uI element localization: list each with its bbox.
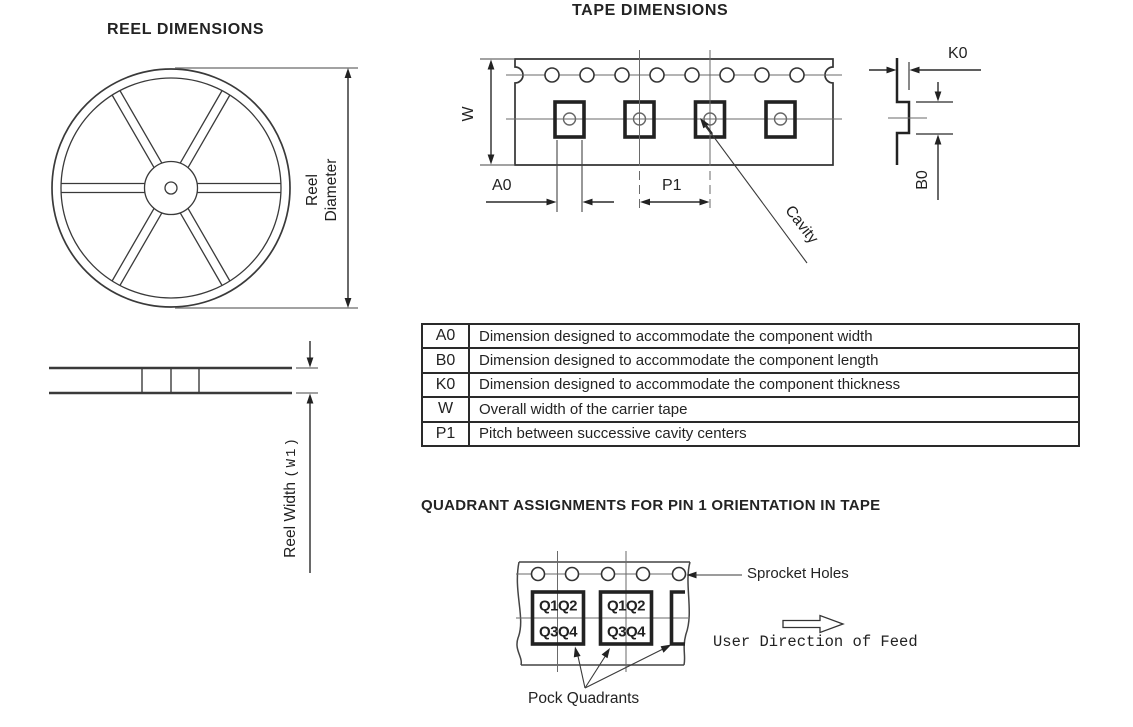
dim-description: Dimension designed to accommodate the co… <box>469 348 1079 372</box>
b0-label: B0 <box>914 170 932 190</box>
dim-description: Dimension designed to accommodate the co… <box>469 373 1079 397</box>
tape-w-label: W <box>460 106 478 121</box>
reel-center-hole <box>165 182 177 194</box>
tape-p1-dimension <box>640 199 710 206</box>
cavity2-quadrants-top: Q1Q2 <box>607 598 645 615</box>
dim-key: A0 <box>422 324 469 348</box>
table-row: P1 Pitch between successive cavity cente… <box>422 422 1079 446</box>
sprocket-holes-label: Sprocket Holes <box>747 565 849 582</box>
cavity2-quadrants-bottom: Q3Q4 <box>607 624 645 641</box>
reel-hub-circle <box>145 162 198 215</box>
table-row: A0 Dimension designed to accommodate the… <box>422 324 1079 348</box>
feed-direction-label: User Direction of Feed <box>713 633 918 651</box>
quadrant-assignments-title: QUADRANT ASSIGNMENTS FOR PIN 1 ORIENTATI… <box>421 497 880 514</box>
sprocket-holes-leader <box>687 572 743 579</box>
dim-key: W <box>422 397 469 421</box>
dim-key: K0 <box>422 373 469 397</box>
tape-drawing <box>480 50 842 263</box>
tape-a0-label: A0 <box>492 177 512 195</box>
dimension-definitions-table: A0 Dimension designed to accommodate the… <box>421 323 1080 447</box>
pocket-quadrant-leaders <box>574 645 672 689</box>
cavity1-quadrants-top: Q1Q2 <box>539 598 577 615</box>
cross-section-profile <box>897 58 909 165</box>
reel-diameter-label: Reel Diameter <box>303 159 341 222</box>
cavity-leader <box>700 118 807 263</box>
reel-dimensions-title: REEL DIMENSIONS <box>107 21 264 39</box>
dim-key: B0 <box>422 348 469 372</box>
reel-outer-circle <box>52 69 290 307</box>
k0-label: K0 <box>948 45 968 63</box>
reel-inner-rim-circle <box>61 78 281 298</box>
dim-description: Pitch between successive cavity centers <box>469 422 1079 446</box>
reel-width-label: Reel Width (W1) <box>282 436 300 558</box>
cavity1-quadrants-bottom: Q3Q4 <box>539 624 577 641</box>
table-row: W Overall width of the carrier tape <box>422 397 1079 421</box>
table-row: K0 Dimension designed to accommodate the… <box>422 373 1079 397</box>
feed-direction-arrow <box>783 616 843 633</box>
tape-a0-dimension <box>486 140 614 212</box>
k0-dimension <box>869 67 981 74</box>
tape-p1-label: P1 <box>662 177 682 195</box>
dim-description: Overall width of the carrier tape <box>469 397 1079 421</box>
reel-hub-side <box>142 369 199 392</box>
table-row: B0 Dimension designed to accommodate the… <box>422 348 1079 372</box>
pocket-quadrants-label: Pock Quadrants <box>528 690 639 708</box>
reel-side-drawing <box>49 341 318 573</box>
tape-dimensions-title: TAPE DIMENSIONS <box>572 2 728 20</box>
dim-description: Dimension designed to accommodate the co… <box>469 324 1079 348</box>
reel-spokes <box>61 91 281 286</box>
tape-and-reel-drawing: REEL DIMENSIONS TAPE DIMENSIONS QUADRANT… <box>0 0 1133 727</box>
dim-key: P1 <box>422 422 469 446</box>
